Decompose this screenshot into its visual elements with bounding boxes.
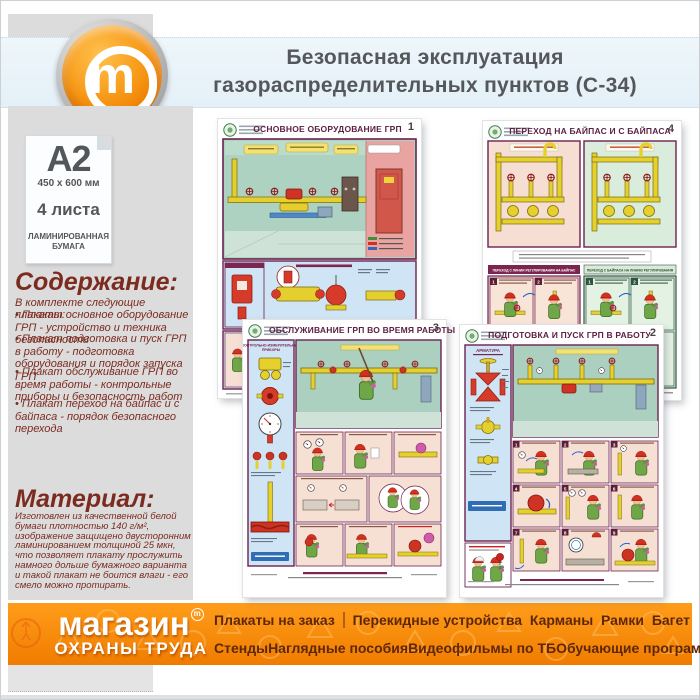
footer-menu-row-2: Стенды Наглядные пособия Видеофильмы по …	[214, 639, 690, 657]
format-card: А2 450 x 600 мм 4 листа ЛАМИНИРОВАННАЯ Б…	[25, 135, 112, 264]
svg-text:5: 5	[564, 486, 567, 491]
menu-item-posters-to-order[interactable]: Плакаты на заказ	[214, 612, 335, 628]
column-title: АРМАТУРА	[476, 348, 501, 353]
svg-text:8: 8	[564, 530, 567, 535]
logo-m-icon: m	[62, 47, 162, 105]
contents-heading: Содержание:	[15, 268, 178, 297]
svg-text:2: 2	[564, 442, 567, 447]
paper-fold-icon	[97, 136, 111, 150]
poster-illustration: КОНТРОЛЬНО-ИЗМЕРИТЕЛЬНЫЕ ПРИБОРЫ	[243, 320, 446, 597]
menu-item-frames[interactable]: Рамки	[601, 612, 644, 628]
paper-type-label: ЛАМИНИРОВАННАЯ БУМАГА	[26, 232, 111, 252]
poster-number: 4	[668, 123, 674, 135]
svg-text:2: 2	[537, 279, 540, 284]
poster-title: ПЕРЕХОД НА БАЙПАС И С БАЙПАСА	[509, 126, 671, 136]
footer-brand-logo[interactable]: магазинm ОХРАНЫ ТРУДА	[36, 608, 226, 658]
svg-text:9: 9	[613, 530, 616, 535]
column-title-line2: ПРИБОРЫ	[262, 348, 281, 352]
page-title-line2: газораспределительных пунктов (С-34)	[165, 72, 685, 100]
svg-text:7: 7	[515, 530, 518, 535]
sidebar-bottom-strip	[8, 665, 153, 692]
sheets-label: 4 листа	[26, 200, 111, 220]
poster-title: ОБСЛУЖИВАНИЕ ГРП ВО ВРЕМЯ РАБОТЫ	[269, 325, 436, 335]
menu-item-safety-videos[interactable]: Видеофильмы по ТБ	[408, 640, 556, 656]
menu-item-stands[interactable]: Стенды	[214, 640, 268, 656]
menu-item-visual-aids[interactable]: Наглядные пособия	[268, 640, 408, 656]
menu-item-training-programs[interactable]: Обучающие программы	[556, 640, 700, 656]
svg-text:6: 6	[613, 486, 616, 491]
contents-item-4: Плакат переход на байпас и с байпаса - п…	[15, 398, 189, 436]
svg-text:2: 2	[633, 279, 636, 284]
material-heading: Материал:	[15, 485, 154, 514]
svg-text:4: 4	[515, 486, 518, 491]
poster-thumbnail-maintenance[interactable]: КОНТРОЛЬНО-ИЗМЕРИТЕЛЬНЫЕ ПРИБОРЫ	[243, 320, 446, 597]
svg-text:1: 1	[515, 442, 518, 447]
footer-menu-row-1: Плакаты на заказ Перекидные устройства К…	[214, 611, 690, 629]
poster-illustration: АРМАТУРА	[460, 325, 663, 597]
page-title-line1: Безопасная эксплуатация	[165, 44, 685, 72]
poster-title: ОСНОВНОЕ ОБОРУДОВАНИЕ ГРП	[244, 124, 411, 134]
brand-name: магазинm	[36, 608, 226, 640]
brand-m-mark-icon: m	[191, 608, 204, 621]
svg-text:1: 1	[588, 279, 591, 284]
poster-number: 3	[433, 322, 439, 334]
material-text: Изготовлен из качественной белой бумаги …	[15, 512, 192, 590]
page-bottom-edge	[1, 695, 699, 699]
section-right-title: ПЕРЕХОД С БАЙПАСА НА ЛИНИЮ РЕГУЛИРОВАНИЯ	[587, 268, 674, 272]
page-title: Безопасная эксплуатация газораспределите…	[165, 44, 685, 102]
menu-item-baguette[interactable]: Багет	[652, 612, 690, 628]
section-left-title: ПЕРЕХОД С ЛИНИИ РЕГУЛИРОВАНИЯ НА БАЙПАС	[493, 268, 576, 272]
svg-text:3: 3	[613, 442, 616, 447]
brand-subtitle: ОХРАНЫ ТРУДА	[36, 640, 226, 658]
poster-number: 1	[408, 121, 414, 133]
column-title-line1: КОНТРОЛЬНО-ИЗМЕРИТЕЛЬНЫЕ	[243, 344, 301, 348]
poster-number: 2	[650, 327, 656, 339]
poster-title: ПОДГОТОВКА И ПУСК ГРП В РАБОТУ	[486, 330, 653, 340]
poster-thumbnail-startup[interactable]: АРМАТУРА	[460, 325, 663, 597]
svg-text:1: 1	[492, 279, 495, 284]
menu-item-pockets[interactable]: Карманы	[530, 612, 593, 628]
size-label: 450 x 600 мм	[26, 178, 111, 189]
menu-separator	[343, 612, 345, 628]
menu-item-flip-devices[interactable]: Перекидные устройства	[353, 612, 522, 628]
